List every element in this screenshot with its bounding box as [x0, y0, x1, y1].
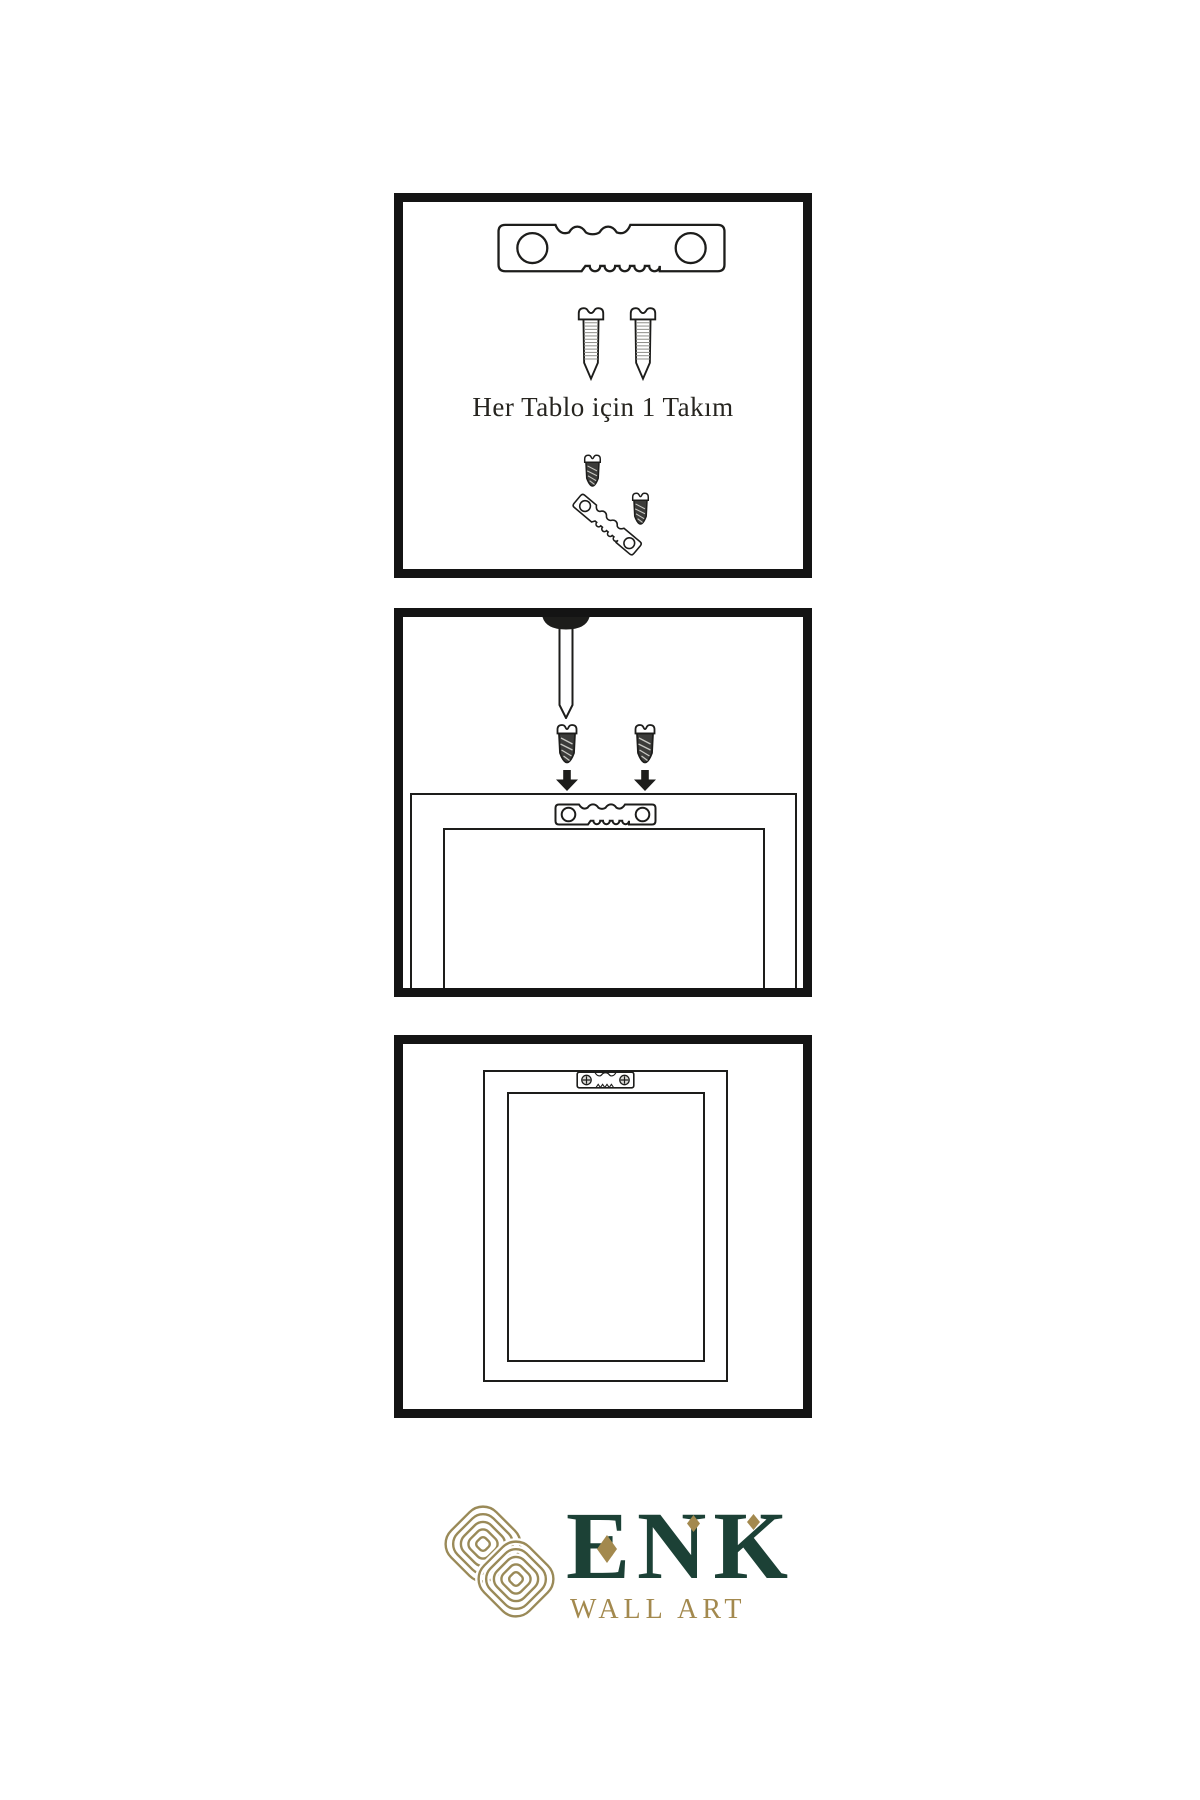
sawtooth-hanger-on-frame-icon	[553, 802, 658, 827]
mounting-screw-icon	[575, 303, 607, 383]
wall-nail-icon	[541, 617, 591, 719]
step-2-panel	[394, 608, 812, 997]
sawtooth-hanger-with-screws-icon	[576, 1071, 635, 1089]
down-arrow-icon	[555, 770, 579, 791]
picture-frame-inner-outline	[507, 1092, 705, 1362]
step-1-caption: Her Tablo için 1 Takım	[403, 392, 803, 423]
knot-logo-icon	[437, 1494, 561, 1630]
screw-into-hanger-assembly-icon	[571, 450, 681, 558]
dark-screw-icon	[631, 721, 659, 767]
brand-logo: ENK WALL ART	[430, 1488, 810, 1648]
dark-screw-icon	[553, 721, 581, 767]
brand-subtitle: WALL ART	[570, 1594, 747, 1626]
step-3-panel	[394, 1035, 812, 1418]
mounting-screw-icon	[627, 303, 659, 383]
frame-back-inner-outline	[443, 828, 765, 997]
step-1-panel: Her Tablo için 1 Takım	[394, 193, 812, 578]
sawtooth-hanger-icon	[493, 222, 730, 278]
down-arrow-icon	[633, 770, 657, 791]
